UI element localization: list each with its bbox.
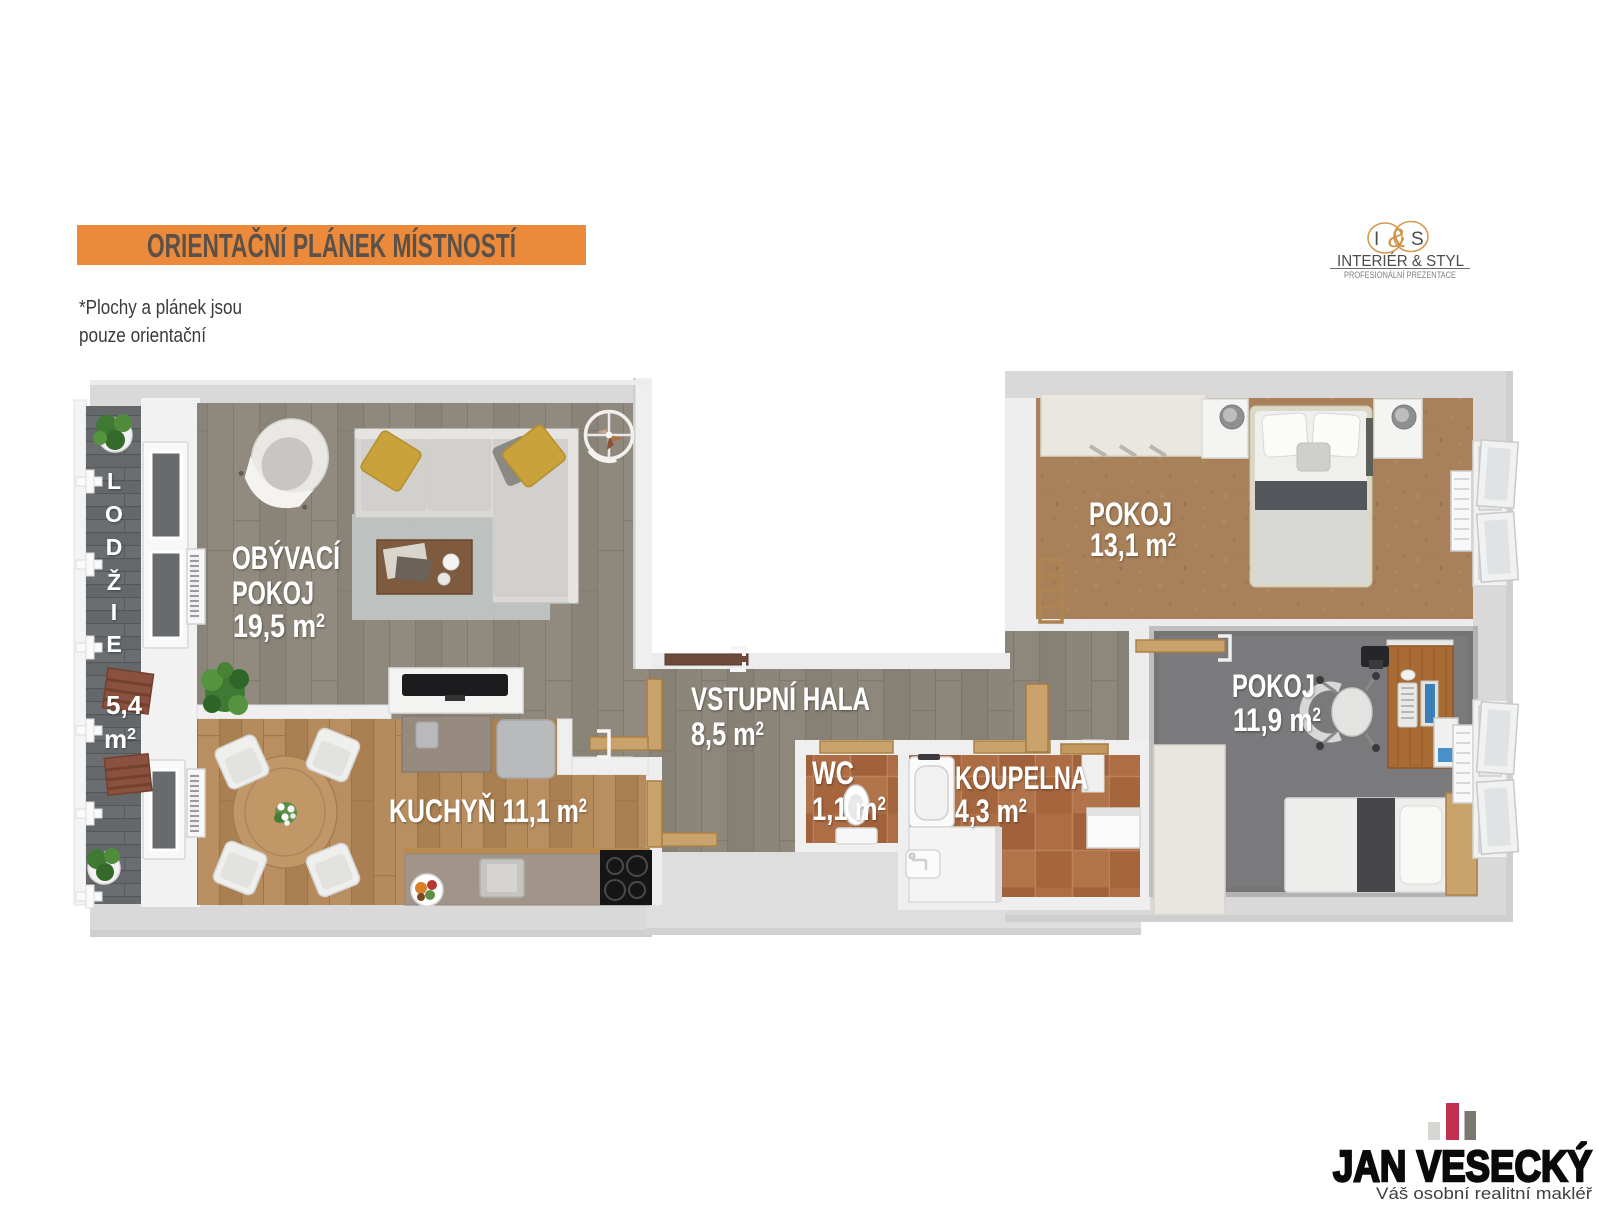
svg-text:*Plochy a plánek jsou: *Plochy a plánek jsou xyxy=(79,297,242,319)
svg-text:ORIENTAČNÍ PLÁNEK MÍSTNOSTÍ: ORIENTAČNÍ PLÁNEK MÍSTNOSTÍ xyxy=(147,226,517,264)
svg-text:8,5 m2: 8,5 m2 xyxy=(691,716,764,752)
svg-text:Ž: Ž xyxy=(107,568,121,595)
svg-text:I: I xyxy=(1374,229,1379,250)
svg-text:POKOJ: POKOJ xyxy=(232,575,314,611)
svg-text:E: E xyxy=(106,631,121,657)
svg-text:1,1 m2: 1,1 m2 xyxy=(812,791,886,827)
svg-text:PROFESIONÁLNÍ PREZENTACE: PROFESIONÁLNÍ PREZENTACE xyxy=(1344,270,1456,280)
svg-text:VSTUPNÍ HALA: VSTUPNÍ HALA xyxy=(691,681,870,717)
svg-text:INTERIÉR & STYL: INTERIÉR & STYL xyxy=(1337,251,1464,270)
svg-text:POKOJ: POKOJ xyxy=(1232,668,1315,704)
svg-text:pouze orientační: pouze orientační xyxy=(79,325,206,347)
svg-text:11,9 m2: 11,9 m2 xyxy=(1233,702,1321,738)
svg-text:KUCHYŇ 11,1 m2: KUCHYŇ 11,1 m2 xyxy=(389,793,587,829)
svg-text:13,1 m2: 13,1 m2 xyxy=(1090,527,1176,563)
svg-text:OBÝVACÍ: OBÝVACÍ xyxy=(232,540,341,576)
svg-text:Váš osobní realitní makléř: Váš osobní realitní makléř xyxy=(1376,1184,1592,1200)
svg-text:KOUPELNA: KOUPELNA xyxy=(955,760,1088,796)
svg-text:D: D xyxy=(106,534,123,560)
svg-text:&: & xyxy=(1388,223,1406,253)
svg-text:S: S xyxy=(1411,229,1424,250)
svg-text:4,3 m2: 4,3 m2 xyxy=(955,793,1027,829)
svg-text:19,5 m2: 19,5 m2 xyxy=(233,608,325,644)
svg-text:WC: WC xyxy=(812,755,854,791)
svg-text:O: O xyxy=(105,501,123,527)
svg-text:I: I xyxy=(111,599,117,625)
svg-text:5,4: 5,4 xyxy=(106,690,143,720)
svg-text:L: L xyxy=(107,468,121,494)
